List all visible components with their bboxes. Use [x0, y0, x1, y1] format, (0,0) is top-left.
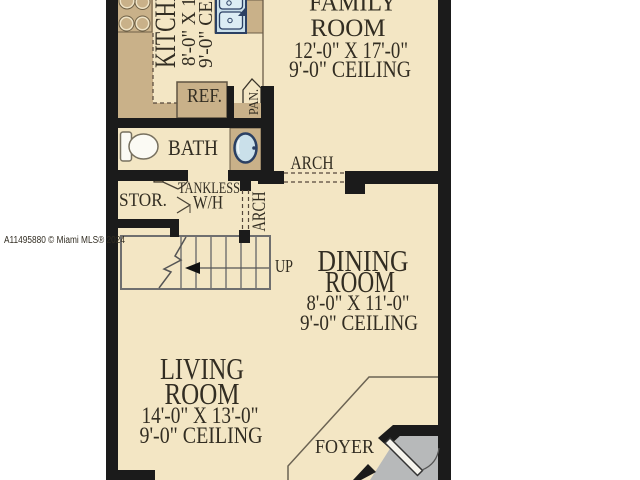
- svg-text:A11495880 © Miami MLS® 2024: A11495880 © Miami MLS® 2024: [4, 235, 125, 246]
- svg-text:FOYER: FOYER: [315, 436, 375, 458]
- svg-text:ARCH: ARCH: [249, 191, 270, 231]
- svg-text:STOR.: STOR.: [119, 190, 167, 211]
- svg-text:PAN.: PAN.: [247, 89, 262, 115]
- svg-text:9'-0" CEILING: 9'-0" CEILING: [289, 57, 411, 82]
- svg-text:UP: UP: [275, 256, 293, 276]
- svg-text:BATH: BATH: [168, 135, 218, 160]
- svg-text:9'-0" CEILING: 9'-0" CEILING: [300, 310, 418, 335]
- svg-text:9'-0" CEILING: 9'-0" CEILING: [195, 0, 217, 68]
- svg-text:9'-0" CEILING: 9'-0" CEILING: [140, 423, 263, 448]
- svg-text:W/H: W/H: [193, 193, 223, 214]
- svg-text:ARCH: ARCH: [291, 153, 334, 174]
- svg-text:REF.: REF.: [187, 85, 222, 107]
